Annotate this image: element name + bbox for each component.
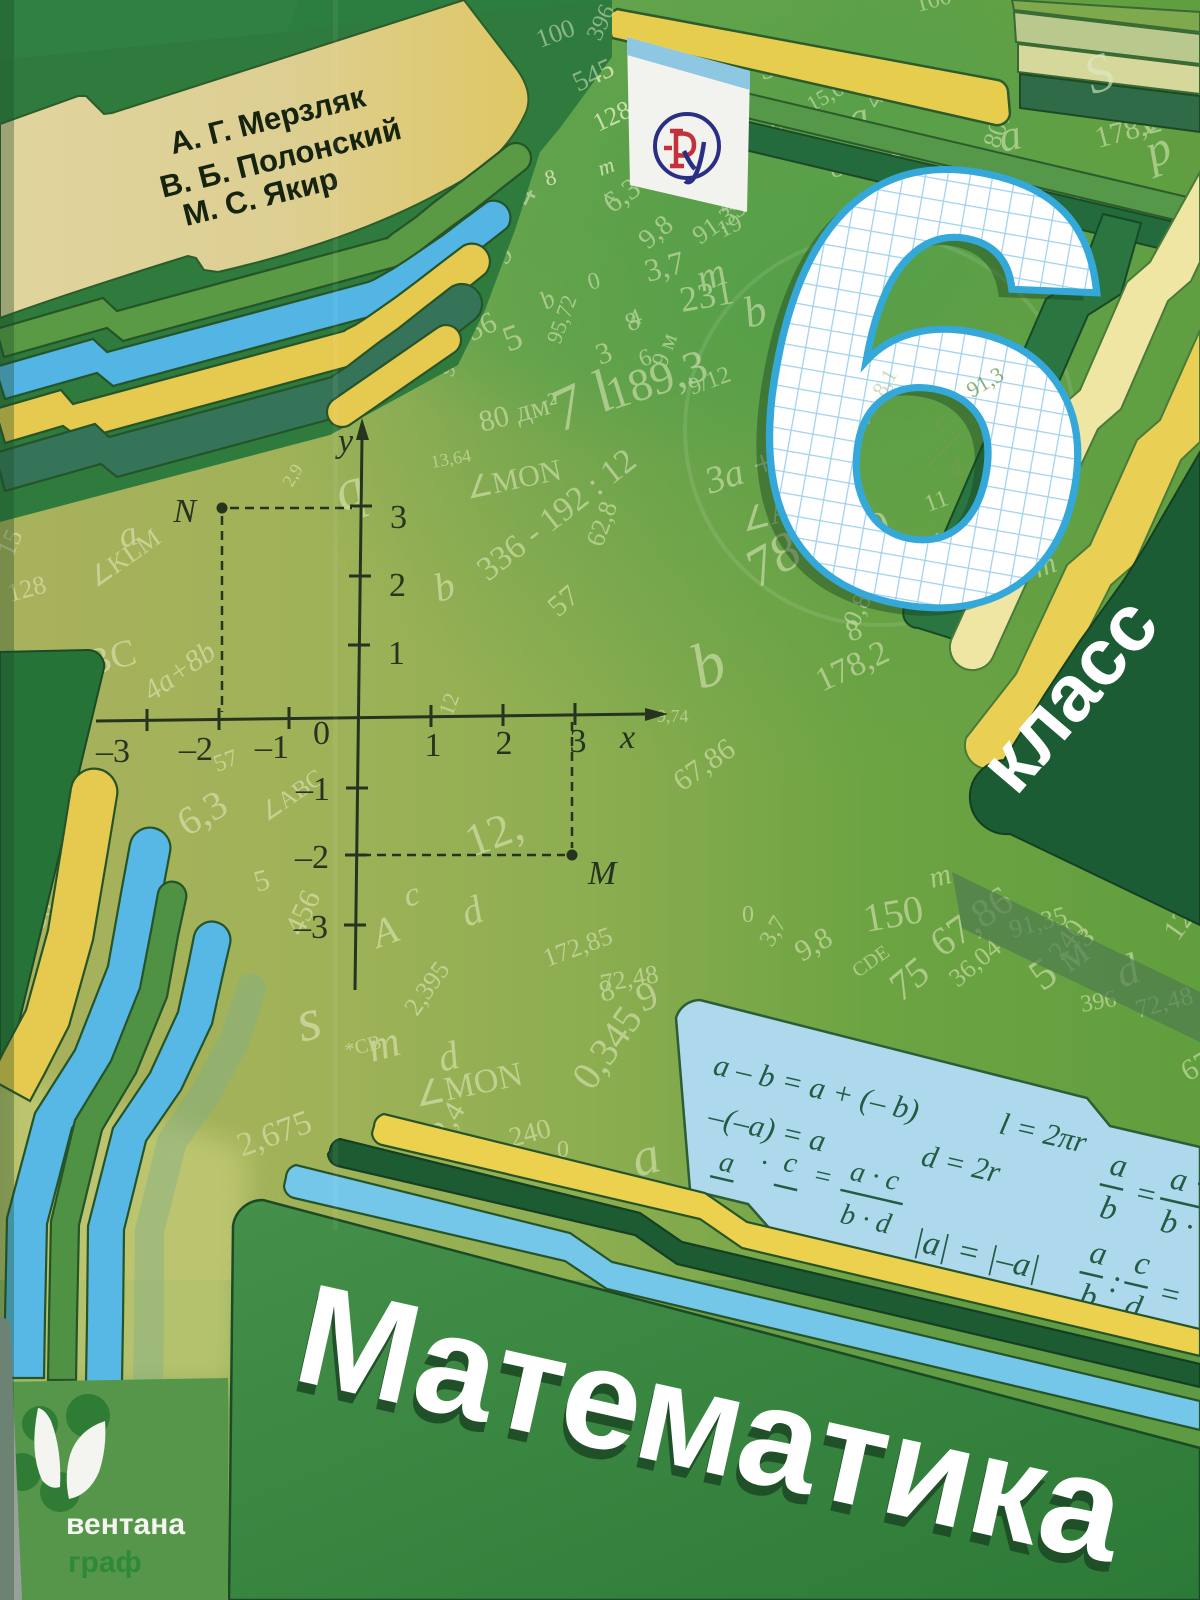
svg-text:–3: –3 <box>95 733 130 770</box>
svg-text:–2: –2 <box>178 731 213 768</box>
svg-text:граф: граф <box>68 1546 142 1579</box>
svg-text:3: 3 <box>570 723 587 760</box>
svg-text:0: 0 <box>313 715 330 752</box>
svg-text:–1: –1 <box>254 729 289 766</box>
svg-text:0: 0 <box>742 902 754 928</box>
svg-text:2: 2 <box>389 567 406 604</box>
svg-text:1: 1 <box>388 635 405 672</box>
svg-text:3: 3 <box>390 499 407 536</box>
svg-text:x: x <box>619 719 635 756</box>
svg-text:–1: –1 <box>295 771 330 808</box>
svg-text:N: N <box>172 493 198 530</box>
svg-text:M: M <box>587 855 618 892</box>
svg-text:1: 1 <box>425 727 442 764</box>
svg-text:–2: –2 <box>294 839 329 876</box>
svg-text:–3: –3 <box>293 909 328 946</box>
svg-text:9,74: 9,74 <box>657 706 689 726</box>
svg-text:2: 2 <box>496 725 513 762</box>
svg-text:вентана: вентана <box>66 1508 185 1541</box>
